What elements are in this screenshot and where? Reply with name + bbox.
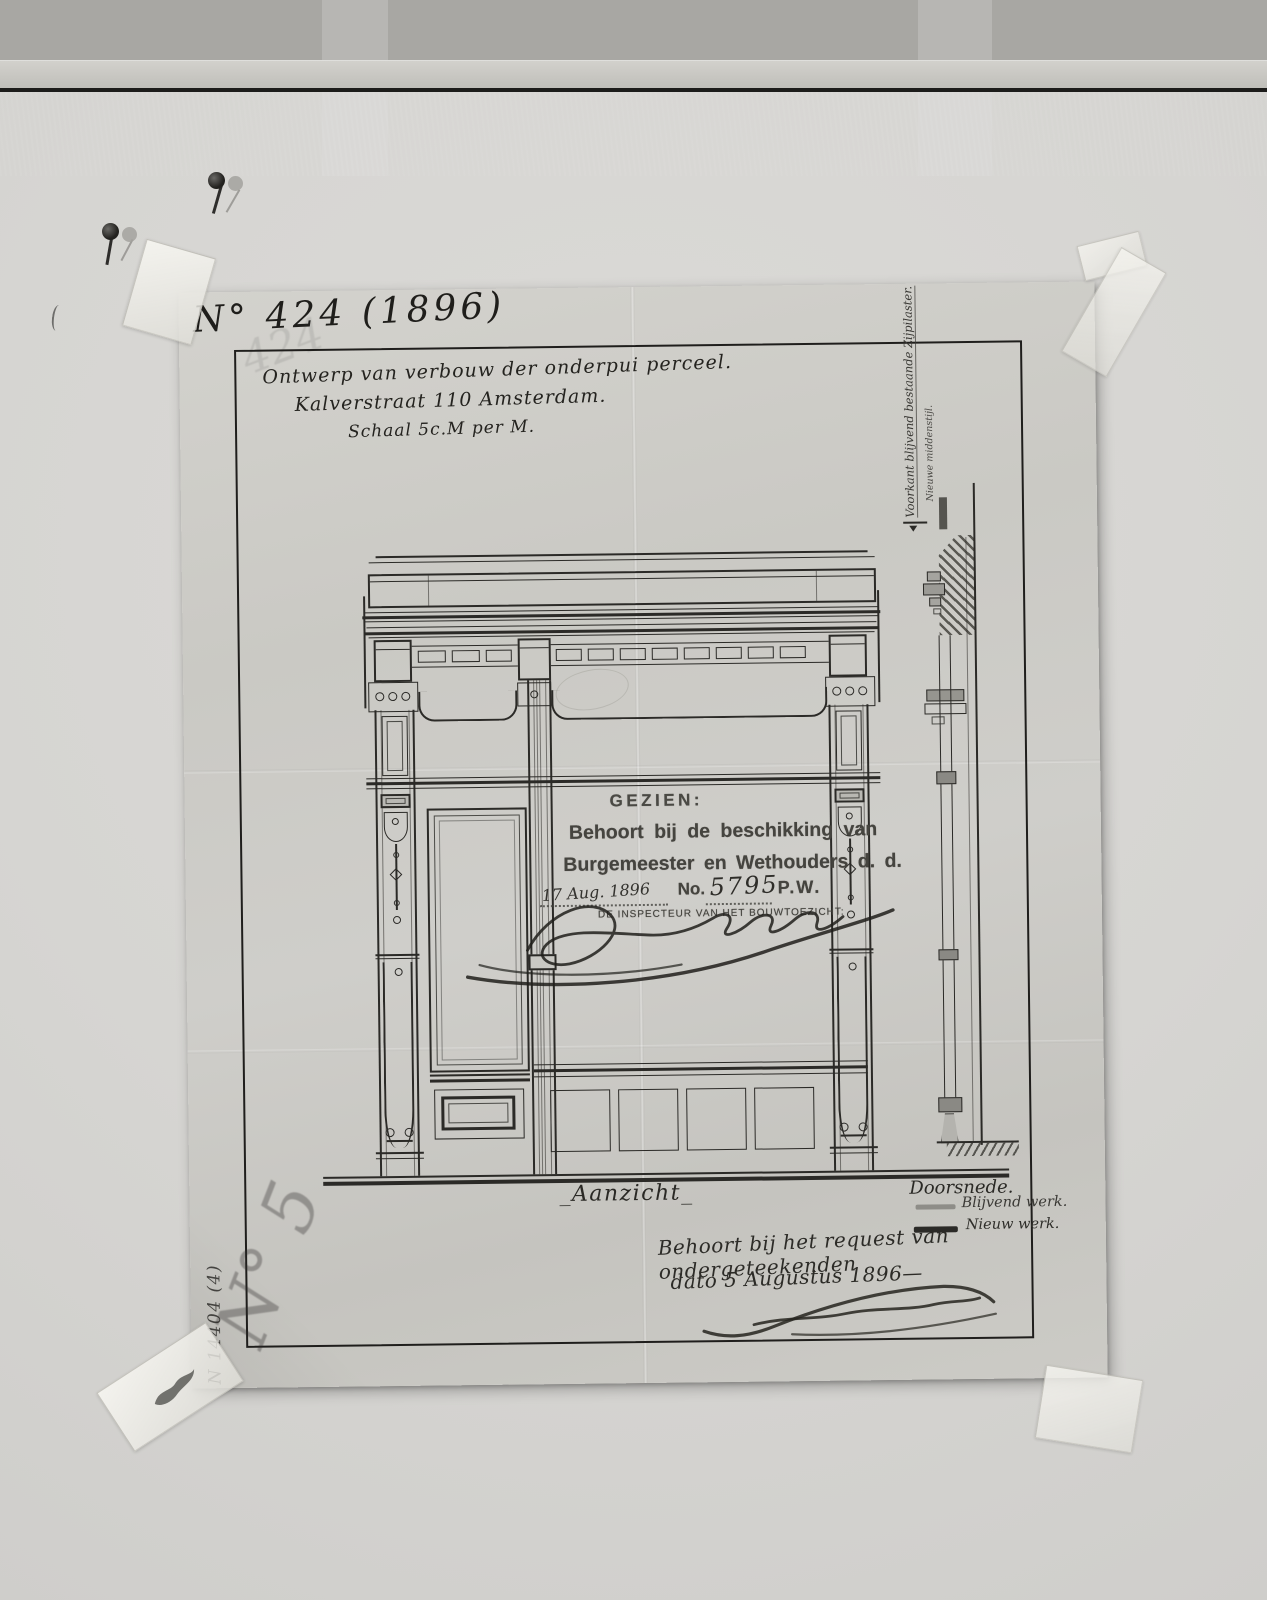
drawing-sheet: N° 424 (1896) 424 Ontwerp van verbouw de… [178, 281, 1107, 1388]
ornament-dot [393, 916, 401, 924]
push-pin [98, 220, 142, 272]
corbel-dot [375, 692, 384, 701]
elevation-caption: _Aanzicht_ [559, 1180, 693, 1207]
frieze-strip [412, 645, 518, 668]
frieze-panel [588, 648, 614, 660]
section-block [938, 1097, 962, 1112]
frieze-panel [684, 647, 710, 659]
console-foot [859, 1122, 868, 1131]
section-block [936, 771, 956, 784]
capital-line [831, 643, 865, 644]
archive-number: N° 424 (1896) [192, 285, 506, 341]
window-base-panel [686, 1088, 747, 1151]
pin-head-shadow [122, 227, 137, 242]
corbel-dot [832, 687, 841, 696]
wall-panel-strip [322, 0, 388, 62]
section-profile-step [929, 597, 941, 606]
corbel-block [368, 682, 418, 713]
pilaster-top-panel [835, 710, 862, 770]
panel-inner [387, 721, 404, 771]
stamp-line-1: Behoort bij de beschikking van [569, 818, 877, 845]
applicant-signature [695, 1276, 1006, 1345]
pin-head [208, 172, 225, 189]
frieze-capital [829, 634, 868, 676]
section-profile-step [927, 571, 941, 581]
pilaster-top-panel [382, 716, 409, 776]
stamp-gezien: GEZIEN: [609, 790, 703, 811]
capital-line [376, 649, 410, 650]
corbel-dot [401, 692, 410, 701]
corbel-dot [845, 686, 854, 695]
frieze-panel [486, 650, 512, 662]
push-pin [205, 170, 249, 222]
frieze-capital [374, 640, 413, 682]
section-ground-hatch [947, 1142, 1019, 1156]
tape-ink-blot [142, 1358, 209, 1416]
pin-shadow-stem [226, 189, 241, 213]
section-annotation-line-1: Voorkant blijvend bestaande Zijpilaster. [900, 286, 918, 518]
legend-swatch-blijvend [916, 1204, 956, 1209]
frieze-panel [556, 649, 582, 661]
section-flag [939, 497, 947, 529]
section-tick-arrow [909, 526, 917, 532]
panel-inner [386, 798, 406, 804]
wall-ledge [0, 60, 1267, 91]
frieze-panel [652, 648, 678, 660]
ornament-knob [394, 900, 400, 906]
window-base-panel [618, 1089, 679, 1152]
inspector-signature [461, 884, 902, 994]
wall-panel-strip-dark [918, 92, 992, 176]
console-base-line [387, 1140, 413, 1142]
pilaster-console [383, 962, 415, 1148]
pilaster-ornament [381, 810, 413, 950]
door-base-panel [434, 1088, 525, 1139]
corbel-block [825, 676, 875, 707]
section-tick [903, 522, 927, 524]
section-profile-step [933, 608, 941, 614]
frieze-panel [418, 650, 446, 662]
pin-head-shadow [228, 176, 243, 191]
cornice-fascia [368, 568, 876, 608]
frieze-panel [620, 648, 646, 660]
console-base-line [841, 1134, 867, 1136]
frieze-panel [716, 647, 742, 659]
capital-line [520, 647, 549, 648]
wall-dark-band [0, 88, 1267, 176]
frieze-panel [780, 646, 806, 658]
door-base-panel-inner [448, 1103, 508, 1124]
wall-upper [0, 0, 1267, 62]
ornament-knob [393, 852, 399, 858]
section-profile-step [923, 583, 945, 595]
console-foot [840, 1123, 849, 1132]
soffit-arch [418, 691, 517, 722]
stray-ink-mark [50, 304, 64, 331]
section-annotation-line-2: Nieuwe middenstijl. [924, 405, 936, 518]
section-annotation: Voorkant blijvend bestaande Zijpilaster.… [897, 337, 937, 517]
section-block [938, 949, 958, 960]
corbel-dot [388, 692, 397, 701]
wall-panel-strip [918, 0, 992, 62]
pin-head [102, 223, 119, 240]
ornament-diamond [390, 868, 403, 881]
corbel-dot [858, 686, 867, 695]
wall-panel-strip-dark [322, 92, 388, 176]
window-base-panel [754, 1087, 815, 1150]
console-foot [405, 1128, 414, 1137]
pin-shadow-stem [120, 239, 133, 261]
panel-inner [841, 715, 858, 765]
ornament-dot [392, 818, 399, 825]
legend-label-blijvend: Blijvend werk. [961, 1194, 1067, 1211]
frieze-panel [748, 646, 774, 658]
frieze-capital [518, 638, 552, 680]
archival-photo: N° 424 (1896) 424 Ontwerp van verbouw de… [0, 0, 1267, 1600]
frieze-panel [452, 650, 480, 662]
console-dot [395, 968, 403, 976]
frieze-strip [551, 641, 829, 666]
ornament-shield [384, 812, 408, 842]
console-foot [386, 1128, 395, 1137]
tape-bottom-right [1035, 1365, 1143, 1453]
window-base-panel [550, 1089, 611, 1152]
pilaster-small-panel [380, 794, 410, 808]
